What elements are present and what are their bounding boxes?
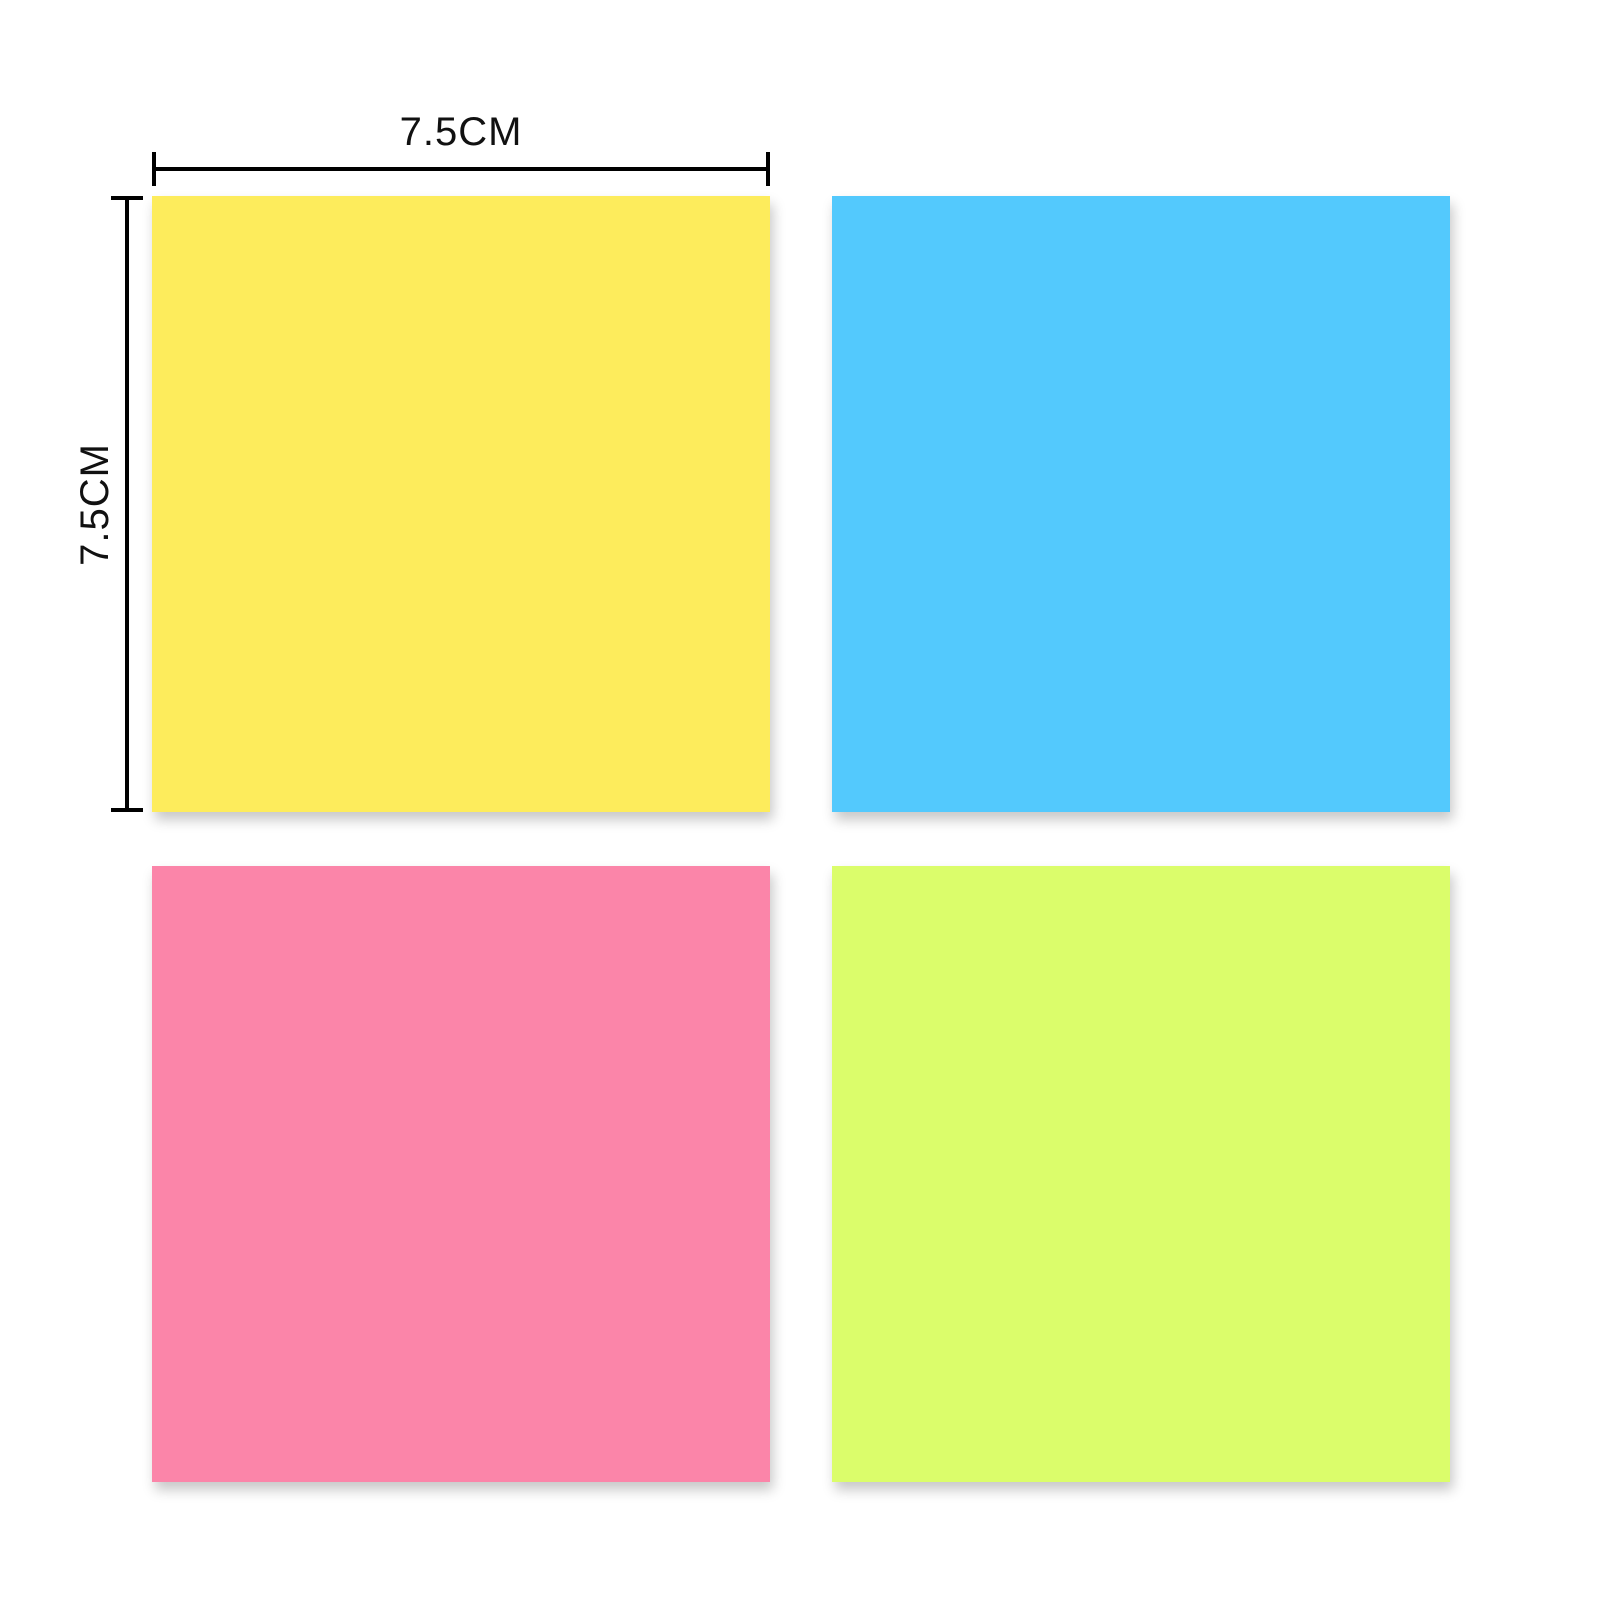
sticky-note-blue <box>832 196 1450 812</box>
width-dimension-start-tick <box>152 152 156 186</box>
sticky-note-green <box>832 866 1450 1482</box>
width-dimension-line <box>152 167 770 171</box>
height-dimension-label: 7.5CM <box>73 443 118 566</box>
width-dimension-label: 7.5CM <box>152 110 770 154</box>
sticky-note-yellow <box>152 196 770 812</box>
height-dimension-end-tick <box>111 808 143 812</box>
sticky-note-pink <box>152 866 770 1482</box>
width-dimension-end-tick <box>766 152 770 186</box>
product-dimension-image: 7.5CM 7.5CM <box>0 0 1600 1600</box>
height-dimension-start-tick <box>111 196 143 200</box>
height-dimension-line <box>125 196 129 812</box>
